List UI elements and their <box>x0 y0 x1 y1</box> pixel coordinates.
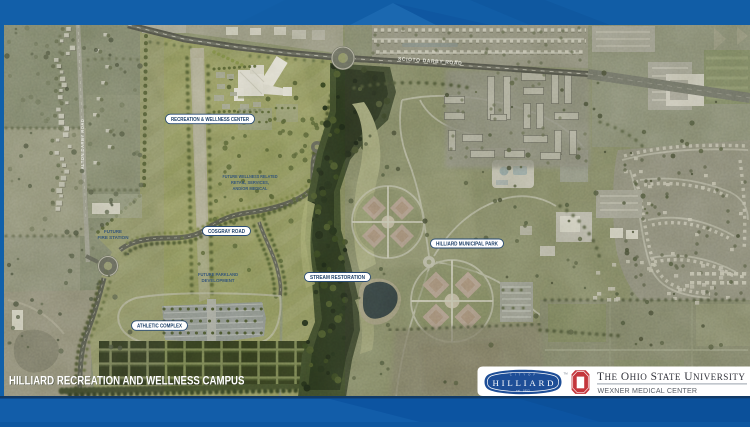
svg-text:FUTURE PARKLAND: FUTURE PARKLAND <box>198 272 238 277</box>
svg-text:HILLIARD RECREATION AND WELLNE: HILLIARD RECREATION AND WELLNESS CAMPUS <box>9 374 245 387</box>
svg-text:TM: TM <box>564 372 569 376</box>
svg-text:FIRE STATION: FIRE STATION <box>98 235 129 240</box>
svg-text:AND/OR MEDICAL: AND/OR MEDICAL <box>233 186 268 191</box>
svg-text:FUTURE: FUTURE <box>104 229 122 234</box>
svg-text:ALTON DARBY ROAD: ALTON DARBY ROAD <box>80 119 85 170</box>
svg-text:ATHLETIC COMPLEX: ATHLETIC COMPLEX <box>137 323 183 329</box>
svg-text:HILLIARD: HILLIARD <box>493 378 554 388</box>
svg-text:STREAM RESTORATION: STREAM RESTORATION <box>310 275 365 281</box>
svg-text:THE OHIO STATE UNIVERSITY: THE OHIO STATE UNIVERSITY <box>597 371 745 383</box>
svg-text:HILLIARD MUNICIPAL PARK: HILLIARD MUNICIPAL PARK <box>436 241 498 247</box>
svg-text:WEXNER MEDICAL CENTER: WEXNER MEDICAL CENTER <box>598 387 698 395</box>
svg-text:est. 1853: est. 1853 <box>516 388 530 392</box>
svg-text:DEVELOPMENT: DEVELOPMENT <box>202 278 235 283</box>
svg-text:FUTURE WELLNESS RELATED: FUTURE WELLNESS RELATED <box>223 174 278 179</box>
svg-text:RECREATION & WELLNESS CENTER: RECREATION & WELLNESS CENTER <box>171 117 249 123</box>
svg-text:RETAIL, SERVICES,: RETAIL, SERVICES, <box>231 180 269 185</box>
svg-text:COSGRAY ROAD: COSGRAY ROAD <box>208 229 245 235</box>
svg-text:C I T Y O F: C I T Y O F <box>510 372 537 376</box>
